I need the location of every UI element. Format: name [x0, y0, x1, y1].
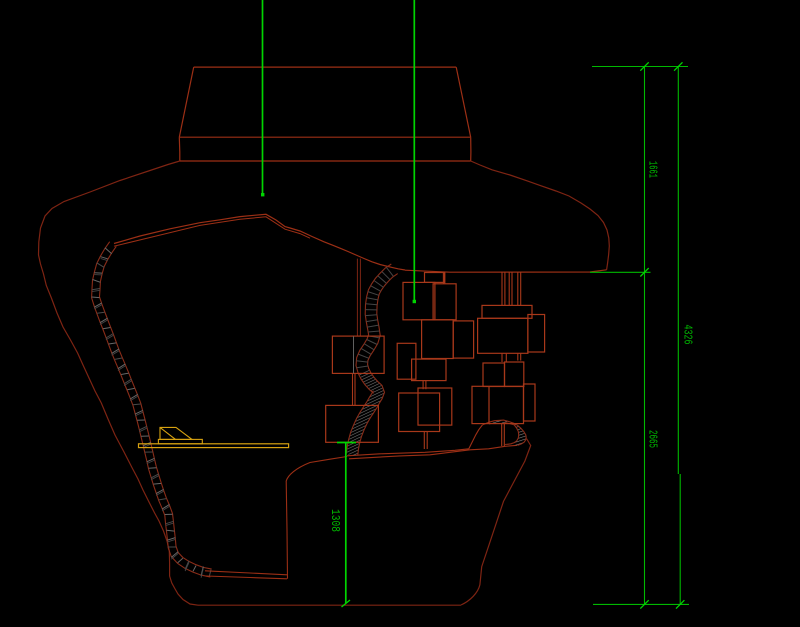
svg-text:1661: 1661: [646, 161, 660, 178]
svg-text:1308: 1308: [328, 509, 342, 532]
svg-text:2665: 2665: [646, 430, 660, 448]
svg-text:4326: 4326: [681, 325, 695, 345]
